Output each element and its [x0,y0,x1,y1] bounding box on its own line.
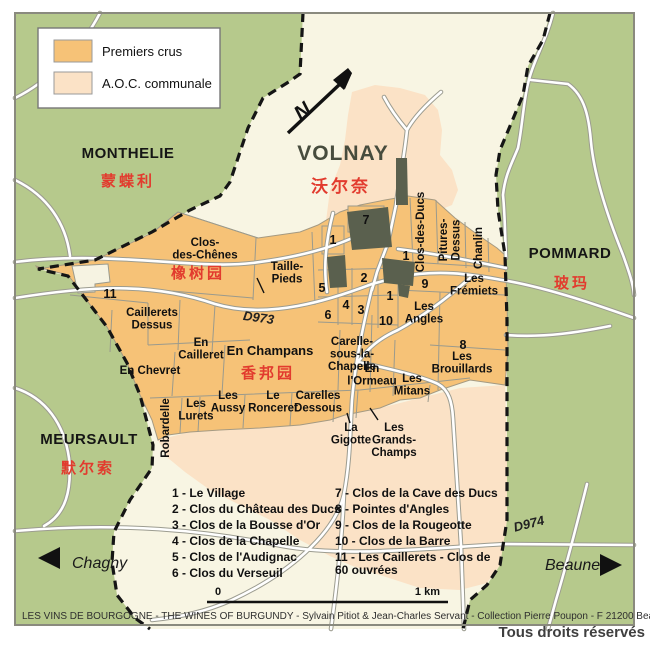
label-pommard-zh: 玻玛 [554,274,590,292]
label-robardelle: Robardelle [160,398,172,457]
label-volnay-zh: 沃尔奈 [311,176,371,196]
label-caillerets-dessus: CailleretsDessus [126,307,178,331]
label-meursault: MEURSAULT [40,431,138,448]
plot-1a: 1 [330,233,337,247]
index-item-6: 6 - Clos du Verseuil [172,566,283,580]
legend: Premiers crus A.O.C. communale [38,28,220,108]
plot-10: 10 [379,314,393,328]
index-item-1: 1 - Le Village [172,486,245,500]
label-chagny: Chagny [72,555,128,572]
plot-4: 4 [343,298,350,312]
legend-label-premiers-crus: Premiers crus [102,44,183,59]
label-en-champans-zh: 香邦园 [241,364,295,382]
label-beaune: Beaune [545,557,600,574]
index-item-3: 3 - Clos de la Bousse d'Or [172,518,321,532]
label-monthelie-zh: 蒙蝶利 [101,172,155,190]
label-en-chevret: En Chevret [120,365,181,377]
index-item-8: 8 - Pointes d'Angles [335,502,450,516]
plot-2: 2 [361,271,368,285]
index-item-10: 10 - Clos de la Barre [335,534,451,548]
index-item-7: 7 - Clos de la Cave des Ducs [335,486,498,500]
plot-3: 3 [358,303,365,317]
label-chanlin: Chanlin [473,227,485,269]
label-monthelie: MONTHELIE [82,145,175,162]
label-clos-des-ducs: Clos-des-Ducs [415,192,427,273]
index-item-5: 5 - Clos de l'Audignac [172,550,297,564]
plot-5: 5 [319,281,326,295]
label-en-champans: En Champans [227,343,314,358]
label-carelles-dessous: CarellesDessous [294,390,342,414]
plot-8: 8 [460,338,467,352]
map-canvas: N MONTHELIE 蒙蝶利 VOLNAY 沃尔奈 POMMARD 玻玛 ME… [0,0,650,646]
label-clos-des-chenes-zh: 橡树园 [171,264,225,282]
label-taille-pieds: Taille-Pieds [271,261,304,285]
plot-6: 6 [325,308,332,322]
label-meursault-zh: 默尔索 [61,459,115,477]
plot-9: 9 [422,277,429,291]
plot-11: 11 [103,287,116,301]
plot-1c: 1 [387,289,394,303]
plot-1b: 1 [403,249,410,263]
legend-label-aoc-communale: A.O.C. communale [102,76,212,91]
legend-swatch-aoc-communale [54,72,92,94]
label-pitures-dessus: Pitures-Dessus [438,218,462,261]
scale-start: 0 [215,586,221,598]
legend-swatch-premiers-crus [54,40,92,62]
credit-line: LES VINS DE BOURGOGNE - THE WINES OF BUR… [22,611,650,622]
index-item-2: 2 - Clos du Château des Ducs [172,502,341,516]
index-item-9: 9 - Clos de la Rougeotte [335,518,472,532]
scale-end: 1 km [415,586,440,598]
label-pommard: POMMARD [529,245,612,262]
plot-7: 7 [363,213,370,227]
volnay-wine-map: N MONTHELIE 蒙蝶利 VOLNAY 沃尔奈 POMMARD 玻玛 ME… [0,0,650,646]
index-item-4: 4 - Clos de la Chapelle [172,534,300,548]
rights-notice: Tous droits réservés [499,624,645,641]
label-volnay: VOLNAY [297,142,389,165]
